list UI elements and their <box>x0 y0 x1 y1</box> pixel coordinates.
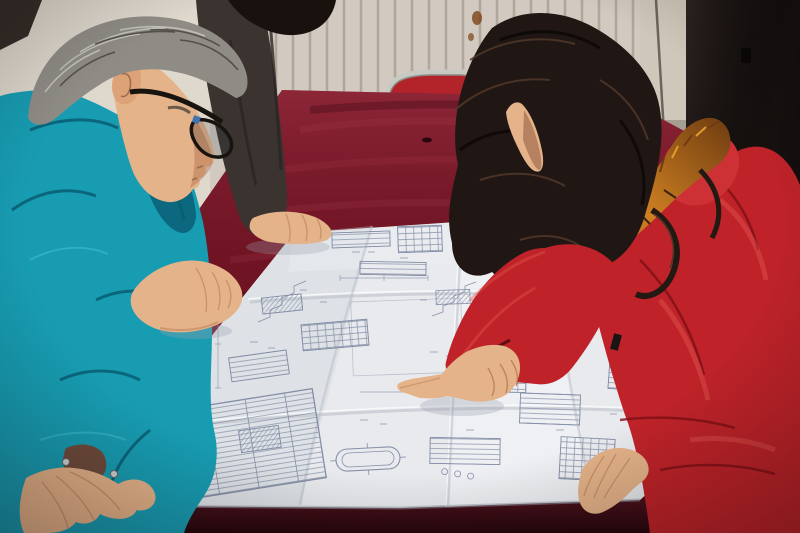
photo-stage <box>0 0 800 533</box>
vignette <box>0 0 800 533</box>
photo-canvas <box>0 0 800 533</box>
